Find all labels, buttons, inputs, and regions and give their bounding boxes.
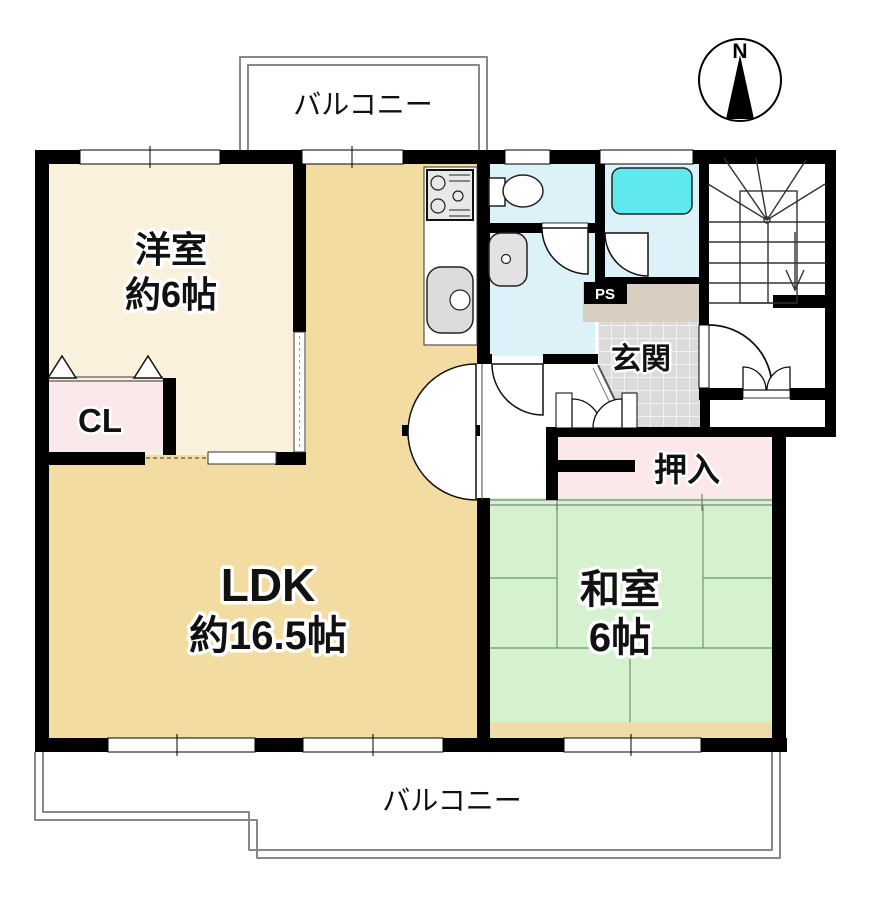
western-room-slider (294, 332, 305, 452)
japanese-room-size: 6帖 (589, 616, 651, 660)
ldk-name: LDK (221, 559, 316, 611)
cl-label: CL (78, 402, 122, 439)
washbasin-icon (489, 233, 527, 286)
bathtub-icon (612, 168, 692, 214)
ldk-size: 約16.5帖 (189, 614, 347, 658)
balcony-bottom-label: バルコニー (382, 785, 521, 816)
western-room-name: 洋室 (135, 229, 207, 270)
compass: N (699, 39, 781, 121)
landing-double-door (743, 367, 790, 398)
kitchen-sink-icon (427, 267, 473, 333)
japanese-room-name: 和室 (580, 568, 660, 612)
western-room-size: 約6帖 (125, 274, 217, 315)
staircase (708, 158, 825, 303)
floor-plan: N 洋室 約6帖 CL LDK 約16.5帖 和室 6帖 押入 玄関 PS バル… (0, 0, 872, 897)
stove-icon (427, 170, 473, 220)
balcony-top-label: バルコニー (293, 89, 432, 120)
toilet-icon (489, 175, 543, 207)
compass-north-label: N (732, 40, 747, 63)
ps-label: PS (595, 286, 615, 303)
oshiire-label: 押入 (654, 451, 720, 488)
floor-plan-canvas: N 洋室 約6帖 CL LDK 約16.5帖 和室 6帖 押入 玄関 PS バル… (0, 0, 872, 897)
kitchen-counter (424, 167, 477, 345)
genkan-label: 玄関 (611, 342, 671, 376)
